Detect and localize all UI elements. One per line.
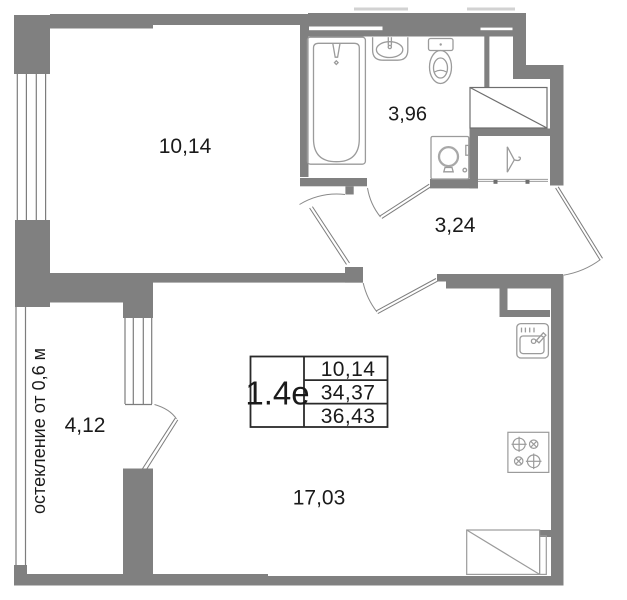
svg-text:34,37: 34,37: [321, 382, 376, 405]
svg-text:36,43: 36,43: [321, 405, 376, 428]
svg-text:3,96: 3,96: [388, 104, 427, 126]
svg-text:4,12: 4,12: [65, 414, 106, 437]
svg-text:10,14: 10,14: [321, 358, 376, 381]
svg-text:1.4е: 1.4е: [245, 375, 309, 412]
svg-text:3,24: 3,24: [435, 214, 476, 237]
svg-text:17,03: 17,03: [293, 487, 346, 510]
svg-text:остекление от 0,6 м: остекление от 0,6 м: [29, 348, 49, 514]
svg-text:10,14: 10,14: [159, 135, 212, 158]
